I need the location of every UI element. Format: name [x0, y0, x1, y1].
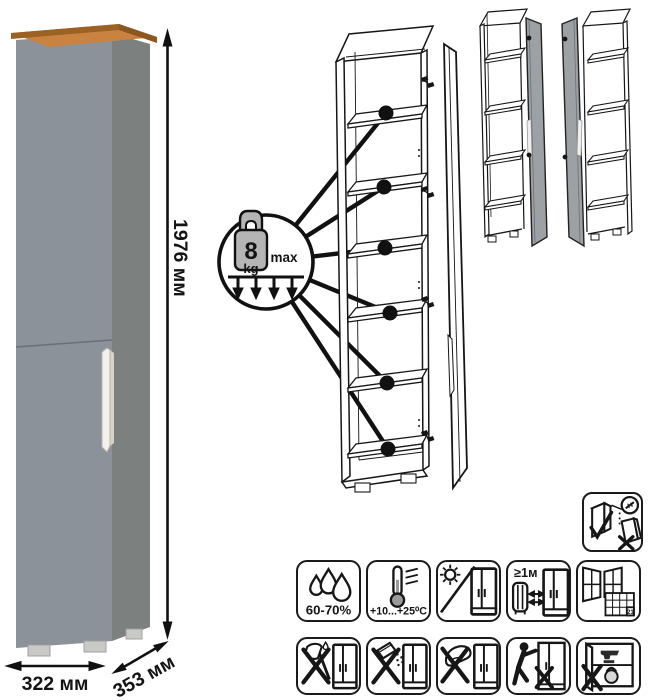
shelf-callout-dots: [377, 106, 398, 457]
height-dimension-label: 1976 мм: [169, 219, 191, 297]
temperature-icon: +10...+25⁰C: [366, 560, 431, 622]
kettlebell-icon: [605, 668, 618, 683]
width-dimension-label: 322 мм: [22, 673, 89, 695]
cabinet-side-panel: [112, 33, 150, 641]
open-door: [444, 44, 467, 488]
no-wet-sponge-icon: [436, 637, 501, 695]
sun-icon: [440, 565, 460, 585]
product-render: 1976 мм 322 мм 353 мм: [0, 0, 215, 700]
heat-distance-icon: ≥1м: [506, 560, 571, 622]
wardrobe-glyph: [403, 645, 426, 688]
max-load-max-label: max: [270, 250, 298, 265]
wardrobe-glyph: [472, 569, 496, 615]
ventilation-icon: 21: [576, 560, 641, 622]
variant-right-hinged: [480, 9, 547, 246]
shelf-pin-holes: [418, 149, 420, 427]
page: 1976 мм 322 мм 353 мм: [0, 0, 648, 700]
no-heavy-items-icon: [576, 637, 641, 695]
cabinet-body: [11, 24, 157, 656]
thermometer-icon: [391, 567, 418, 607]
no-direct-sunlight-icon: [436, 560, 501, 622]
variant-door-handle: [527, 119, 532, 156]
max-load-callout: 8 kg max: [219, 211, 313, 309]
distance-label: ≥1м: [514, 566, 537, 580]
wardrobe-glyph: [474, 645, 497, 688]
door-mounting-variants: [470, 5, 648, 250]
wardrobe-glyph: [333, 645, 356, 688]
humidity-label: 60-70%: [306, 602, 352, 617]
depth-dimension-label: 353 мм: [110, 651, 179, 700]
wardrobe-glyph: [544, 570, 568, 616]
exploded-diagram: 8 kg max: [215, 0, 480, 510]
radiator-icon: [513, 583, 527, 615]
no-dragging-icon: [506, 637, 571, 695]
no-sharp-tools-icon: [296, 637, 361, 695]
water-drops-icon: [310, 569, 350, 601]
door-handle: [102, 348, 110, 452]
spacing-arrows-icon: [529, 592, 543, 605]
no-abrasive-powder-icon: [366, 637, 431, 695]
handle-shadow: [110, 350, 114, 446]
variant-door-handle: [577, 119, 582, 156]
magnifier-screw-icon: [611, 497, 637, 513]
person-icon: [514, 642, 535, 683]
wall-anchor-icon: [582, 492, 643, 552]
temperature-label: +10...+25⁰C: [370, 605, 427, 617]
humidity-icon: 60-70%: [296, 560, 361, 622]
max-load-unit: kg: [243, 261, 258, 276]
calendar-day: 21: [627, 609, 634, 616]
wall-dots: [619, 512, 621, 524]
cabinet-line-drawing: [336, 26, 433, 492]
variant-left-hinged: [562, 9, 632, 246]
